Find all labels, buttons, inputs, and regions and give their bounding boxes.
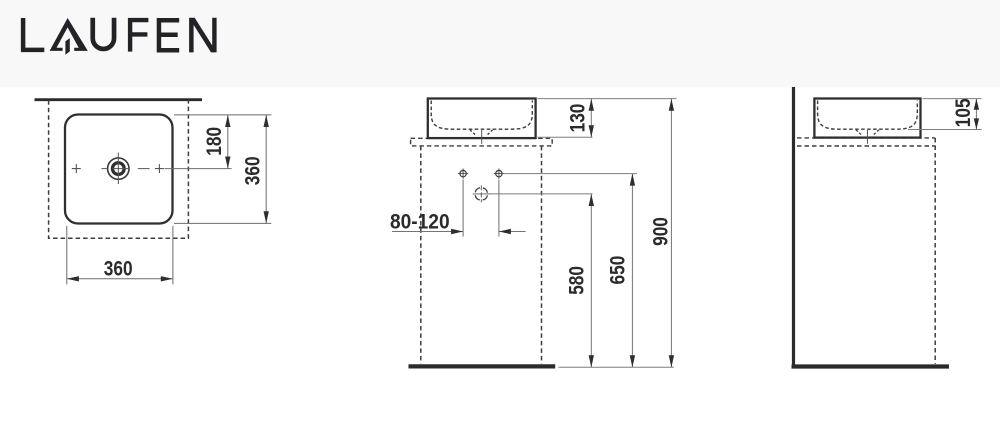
svg-text:360: 360 [242, 156, 265, 185]
svg-text:80-120: 80-120 [390, 210, 450, 233]
svg-text:360: 360 [104, 257, 133, 280]
svg-text:900: 900 [649, 217, 672, 246]
svg-text:130: 130 [566, 104, 589, 133]
svg-text:650: 650 [607, 256, 630, 285]
svg-text:105: 105 [952, 98, 975, 127]
svg-text:180: 180 [203, 127, 226, 156]
svg-text:580: 580 [566, 266, 589, 295]
